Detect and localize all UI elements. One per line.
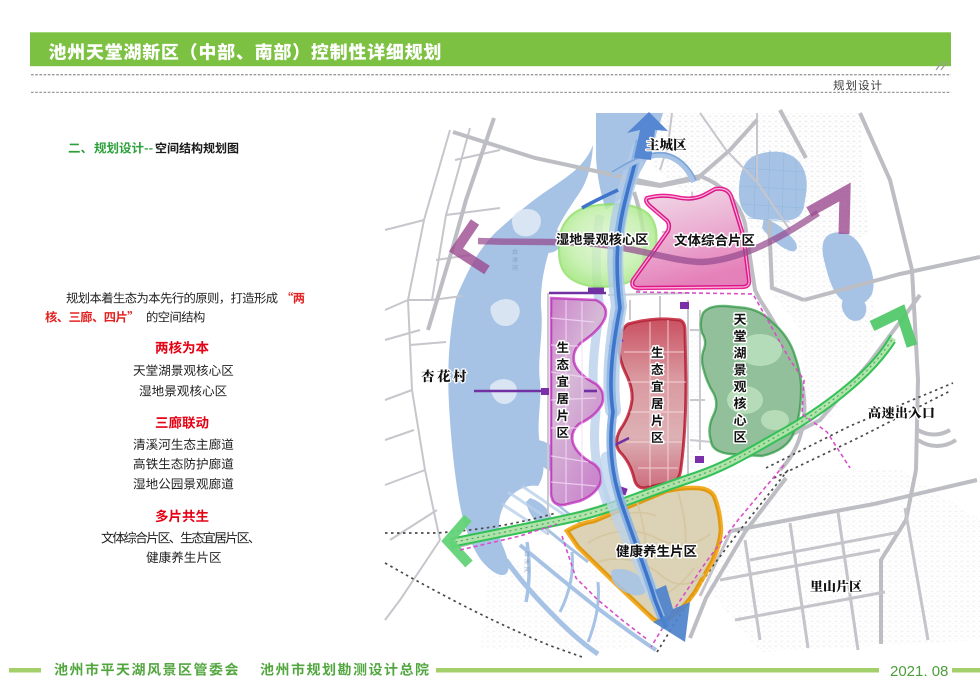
svg-text:2021. 08: 2021. 08 [890,663,948,680]
